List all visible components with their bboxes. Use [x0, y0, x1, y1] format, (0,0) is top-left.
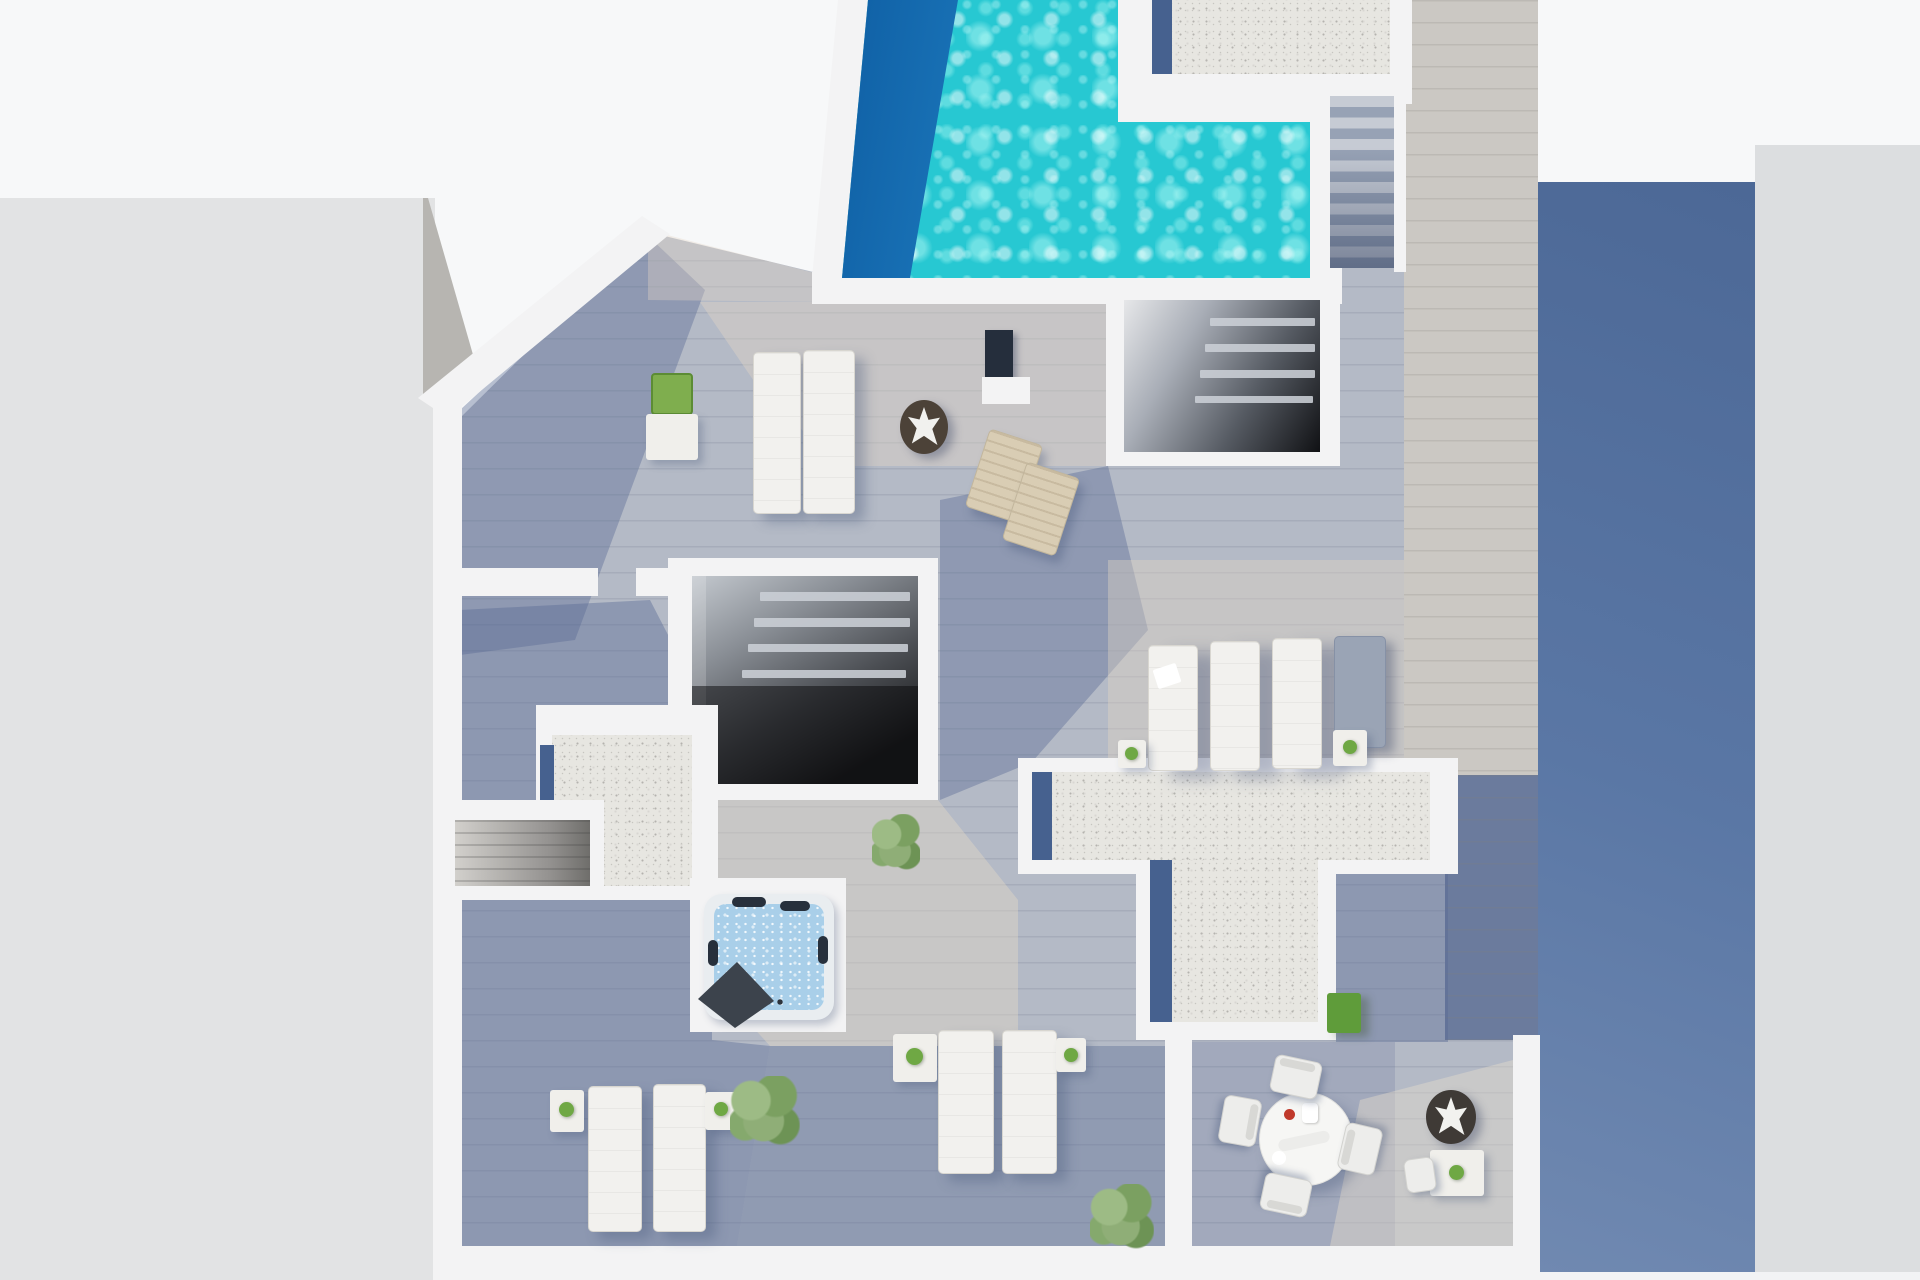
louver-slat [760, 592, 910, 601]
side-table [893, 1034, 937, 1082]
stair-railing [1394, 96, 1406, 272]
potted-plant-small [1449, 1165, 1464, 1180]
rooftop-terrace-render [0, 0, 1920, 1280]
louver-slat [1195, 396, 1313, 403]
sun-lounger [753, 352, 801, 514]
dividing-wall-right [636, 568, 672, 596]
louver-slat [1210, 318, 1315, 326]
neighbor-building-right-shaded-wall [1538, 182, 1760, 1274]
dividing-wall-bottom [1165, 1035, 1192, 1250]
gravel-roof-topright-shadow-strip [1152, 0, 1172, 74]
jacuzzi-headrest [780, 901, 810, 911]
agave-plant [1435, 1097, 1467, 1135]
side-table [646, 414, 698, 460]
grass-patch [1327, 993, 1361, 1033]
neighbor-building-left-roof [0, 198, 435, 1280]
sun-lounger [803, 350, 855, 514]
gravel-roof-T-top [1032, 772, 1430, 860]
leafy-plant [1090, 1184, 1154, 1250]
jacuzzi-headrest [732, 897, 766, 907]
gravel-roof-T-shadow-strip-top [1032, 772, 1052, 860]
neighbor-building-right-roof [1755, 145, 1920, 1280]
potted-plant-small [714, 1102, 728, 1116]
lightwell-floor-dark [692, 686, 918, 784]
exterior-stairs-shading [1330, 96, 1398, 268]
table-item-red [1284, 1109, 1295, 1120]
side-table [1056, 1038, 1086, 1072]
outdoor-shower-panel [985, 330, 1013, 378]
agave-plant [908, 407, 940, 445]
chair-backrest [1279, 1057, 1316, 1072]
table-item-tray [1277, 1130, 1330, 1153]
side-table [1118, 740, 1146, 768]
sun-lounger [1210, 641, 1260, 771]
sun-lounger [1272, 638, 1322, 769]
potted-plant-small [906, 1048, 923, 1065]
side-walkway [1404, 0, 1538, 775]
side-table [1430, 1150, 1484, 1196]
gravel-roof-topright [1168, 0, 1390, 74]
sun-lounger [588, 1086, 642, 1232]
skylight-box-interior [455, 820, 590, 886]
louver-slat [754, 618, 910, 627]
side-table [1333, 730, 1367, 766]
potted-plant-small [1125, 747, 1138, 760]
table-item-cup [1272, 1151, 1286, 1165]
potted-plant-small [1343, 740, 1357, 754]
louver-slat [1200, 370, 1315, 378]
ground-strip-bottom-right [1538, 1272, 1920, 1280]
potted-plant-square [651, 373, 693, 415]
lightwell-room-interior [692, 576, 918, 784]
potted-plant-small [559, 1102, 574, 1117]
jacuzzi-headrest [708, 940, 718, 966]
parapet-right-lower [1513, 1035, 1540, 1260]
leafy-plant [872, 814, 920, 872]
sun-lounger [653, 1084, 706, 1232]
stairwell-room-interior [1124, 300, 1320, 452]
sun-lounger [1002, 1030, 1057, 1174]
agave-planter [900, 400, 948, 454]
table-item-pitcher [1302, 1103, 1318, 1123]
agave-planter [1426, 1090, 1476, 1144]
louver-slat [742, 670, 906, 678]
parapet-bottom [433, 1246, 1540, 1280]
patio-chair [1403, 1156, 1437, 1194]
dividing-wall-left [460, 568, 598, 596]
sun-lounger [938, 1030, 994, 1174]
gravel-roof-T-shadow-strip-stem [1150, 860, 1172, 1022]
louver-slat [748, 644, 908, 652]
gravel-roof-T-stem [1150, 860, 1318, 1022]
leafy-plant [730, 1076, 800, 1146]
louver-slat [1205, 344, 1315, 352]
potted-plant-small [1064, 1048, 1078, 1062]
jacuzzi-headrest [818, 936, 828, 964]
side-table [550, 1090, 584, 1132]
side-walkway-shadowed [1445, 775, 1538, 1040]
outdoor-shower-base [982, 377, 1030, 404]
